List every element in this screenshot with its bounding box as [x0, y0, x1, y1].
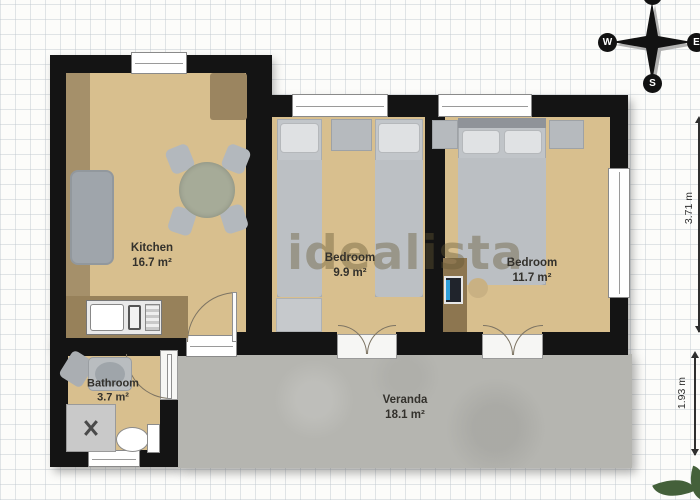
toilet-bowl	[116, 427, 149, 452]
compass-south: S	[643, 74, 662, 93]
kitchen-label: Kitchen 16.7 m²	[131, 241, 173, 271]
kitchen-bedroom1-wall	[246, 55, 272, 334]
veranda-name: Veranda	[383, 393, 428, 408]
dimension-right-arrow-top	[695, 116, 700, 123]
floor-plan: idealista Kitchen 16.7 m² Bedroom 9.9 m²…	[0, 0, 700, 500]
dimension-right-label: 3.71 m	[683, 192, 695, 224]
bedroom1-area: 9.9 m²	[325, 266, 375, 281]
compass-rose	[612, 2, 692, 82]
toilet-tank	[147, 424, 160, 453]
bedroom2-top-window	[438, 94, 532, 117]
veranda-label: Veranda 18.1 m²	[383, 393, 428, 423]
single-bed-right-pillow	[378, 123, 420, 153]
shower-drain-icon	[83, 418, 99, 438]
bedroom1-nightstand	[331, 119, 372, 151]
kitchen-drainboard	[145, 304, 160, 331]
kitchen-faucet	[128, 305, 141, 330]
bottom-wall-b	[236, 332, 337, 355]
bathroom-label: Bathroom 3.7 m²	[87, 377, 139, 406]
bedroom1-label: Bedroom 9.9 m²	[325, 251, 375, 281]
veranda-area: 18.1 m²	[383, 408, 428, 423]
bathroom-name: Bathroom	[87, 377, 139, 391]
dimension-veranda-arrow-top	[691, 351, 699, 358]
dining-table	[179, 162, 235, 218]
double-bed-pillow-left	[462, 130, 500, 154]
dimension-right-arrow-bottom	[695, 326, 700, 333]
double-bed-pillow-right	[504, 130, 542, 154]
bedroom2-name: Bedroom	[507, 256, 557, 271]
kitchen-area: 16.7 m²	[131, 256, 173, 271]
kitchen-window	[131, 52, 187, 74]
right-wall-upper	[610, 95, 628, 170]
bedroom2-nightstand-right	[549, 120, 584, 149]
desk-stool	[468, 278, 488, 298]
bedroom1-dresser	[276, 298, 322, 332]
bathroom-window	[88, 450, 140, 467]
kitchen-cabinet	[210, 73, 247, 120]
idealista-watermark: idealista	[287, 226, 524, 281]
kitchen-sofa	[70, 170, 114, 265]
kitchen-door-leaf	[232, 292, 237, 342]
compass-south-letter: S	[649, 78, 656, 89]
compass-star-icon	[612, 2, 692, 82]
kitchen-name: Kitchen	[131, 241, 173, 256]
kitchen-sink-basin	[90, 304, 124, 331]
bedroom1-name: Bedroom	[325, 251, 375, 266]
compass-east: E	[687, 33, 700, 52]
desk-monitor-screen-glow	[446, 280, 450, 300]
bedroom2-side-window	[608, 168, 630, 298]
compass-east-letter: E	[693, 37, 700, 48]
dimension-line-veranda	[694, 353, 696, 455]
dimension-line-right	[698, 118, 700, 332]
bottom-wall-d	[542, 332, 628, 355]
bathroom-bottom-wall-left	[50, 450, 88, 467]
bathroom-area: 3.7 m²	[87, 391, 139, 405]
bedroom2-nightstand-left	[432, 120, 458, 149]
dimension-veranda-arrow-bottom	[691, 449, 699, 456]
bedroom2-area: 11.7 m²	[507, 271, 557, 286]
bedroom2-label: Bedroom 11.7 m²	[507, 256, 557, 286]
compass-north-letter: N	[649, 0, 656, 1]
double-bed-headboard	[458, 118, 546, 128]
bottom-wall-c	[396, 332, 483, 355]
compass-west-letter: W	[603, 37, 612, 48]
dimension-veranda-label: 1.93 m	[676, 377, 688, 409]
compass-west: W	[598, 33, 617, 52]
bedroom1-window	[292, 94, 388, 117]
single-bed-left-pillow	[280, 123, 319, 153]
bathroom-door-leaf	[167, 354, 172, 399]
